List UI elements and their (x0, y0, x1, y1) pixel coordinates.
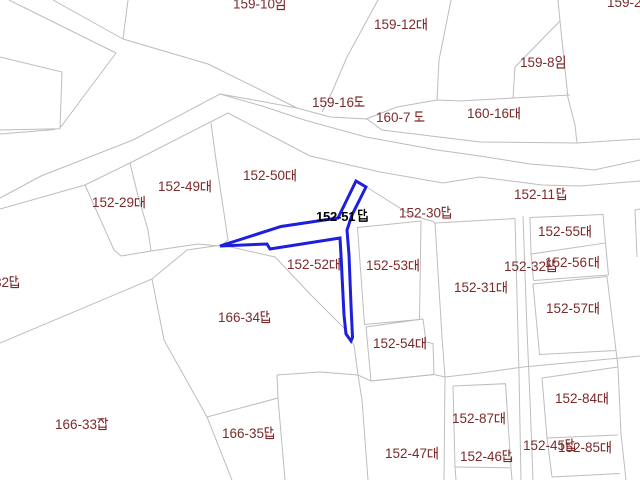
svg-text:152-55: 152-55 (538, 224, 580, 239)
svg-text:159-2: 159-2 (607, 0, 640, 10)
svg-text:152-57: 152-57 (546, 301, 588, 316)
svg-text:166-35: 166-35 (222, 426, 264, 441)
svg-text:152-30: 152-30 (399, 206, 441, 221)
svg-text:152-85: 152-85 (558, 440, 600, 455)
svg-text:152-84: 152-84 (555, 391, 598, 406)
svg-text:159-12: 159-12 (374, 17, 416, 32)
svg-text:166-33: 166-33 (55, 417, 97, 432)
svg-text:160-16: 160-16 (467, 106, 509, 121)
svg-text:159-16: 159-16 (312, 95, 354, 110)
svg-text:152-50: 152-50 (243, 168, 285, 183)
svg-text:32: 32 (0, 275, 9, 290)
svg-text:152-29: 152-29 (92, 195, 134, 210)
svg-text:152-53: 152-53 (366, 258, 408, 273)
svg-text:152-54: 152-54 (373, 336, 416, 351)
svg-text:152-56: 152-56 (545, 255, 587, 270)
svg-text:152-49: 152-49 (158, 179, 200, 194)
svg-text:159-8: 159-8 (520, 55, 555, 70)
svg-text:152-32: 152-32 (504, 259, 546, 274)
svg-text:152-11: 152-11 (514, 187, 555, 202)
svg-text:152-87: 152-87 (452, 411, 494, 426)
svg-text:152-47: 152-47 (385, 446, 427, 461)
svg-text:152-52: 152-52 (287, 257, 329, 272)
svg-text:152-51: 152-51 (316, 209, 355, 224)
svg-text:166-34: 166-34 (218, 310, 261, 325)
svg-text:152-46: 152-46 (460, 449, 502, 464)
svg-text:152-31: 152-31 (454, 280, 496, 295)
svg-text:159-10: 159-10 (233, 0, 275, 12)
svg-text:160-7: 160-7 (376, 110, 411, 125)
